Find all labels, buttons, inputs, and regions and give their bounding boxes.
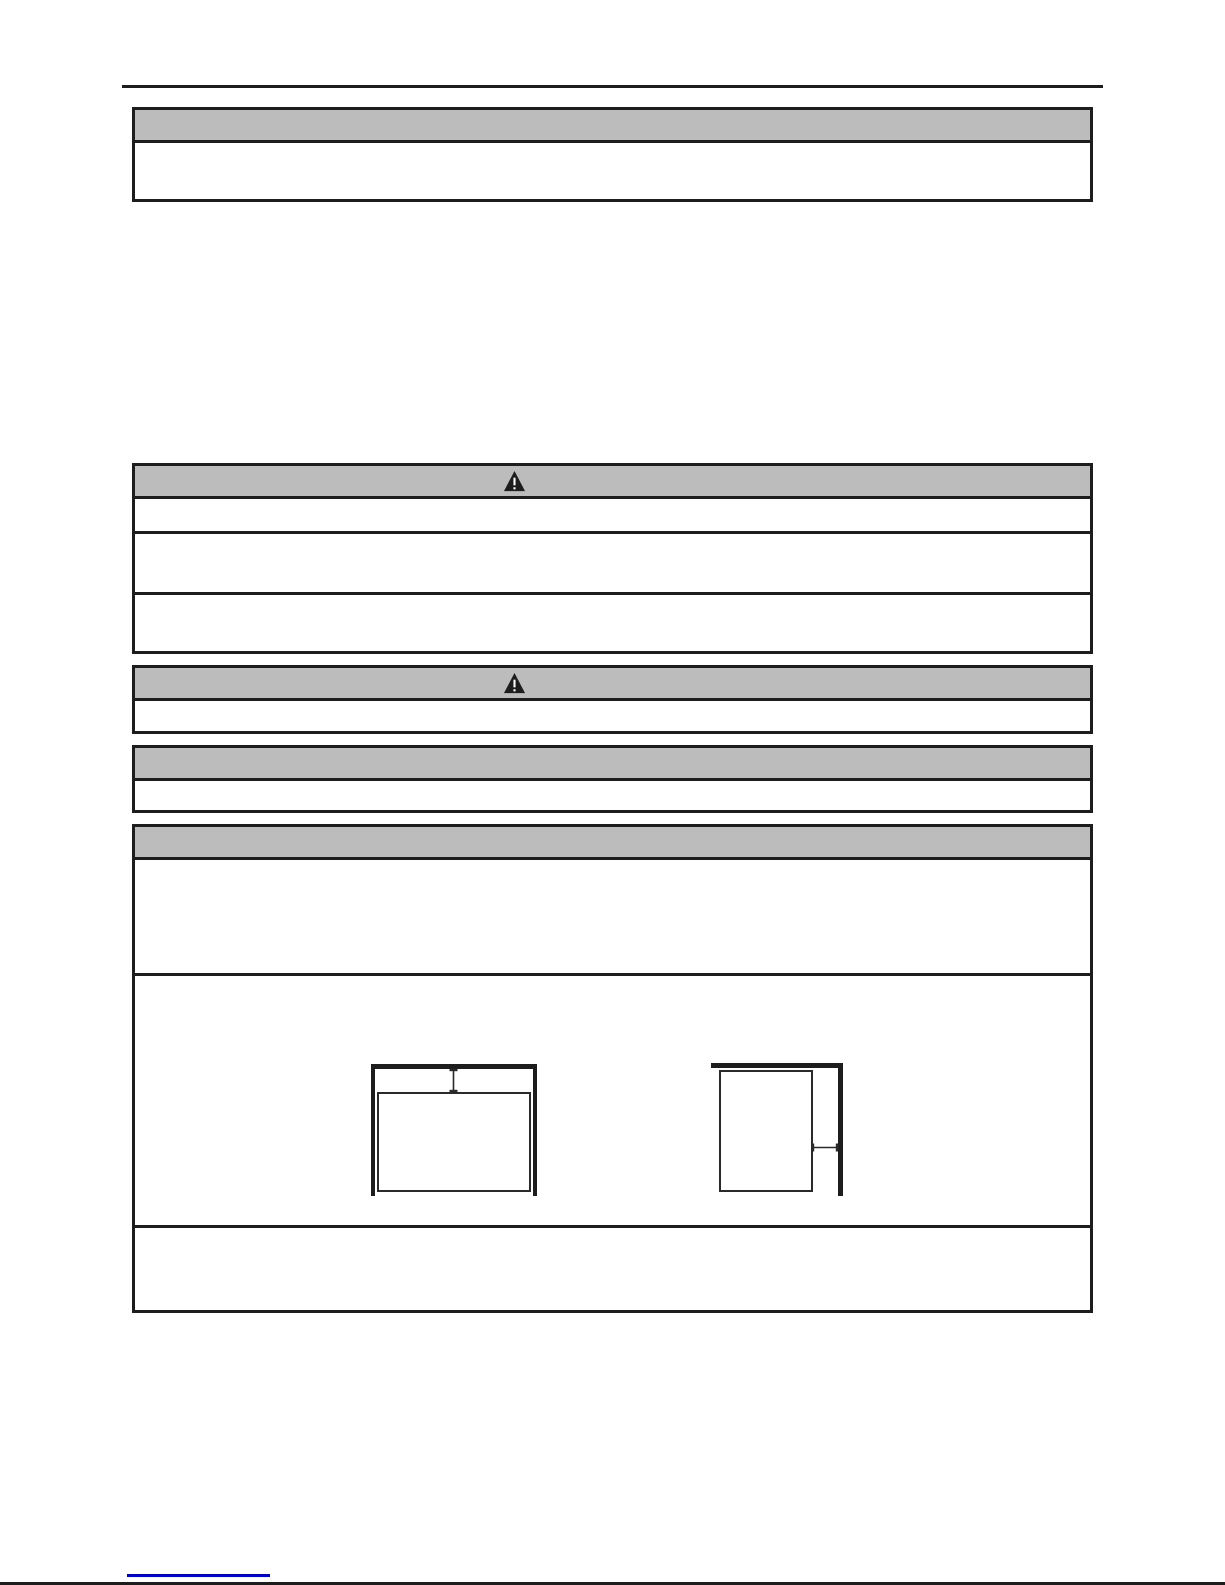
panel-box-5-row-1 bbox=[135, 860, 1090, 973]
panel-box-1-body bbox=[135, 143, 1090, 199]
panel-box-3-row-1 bbox=[135, 701, 1090, 731]
panel-box-1-header bbox=[135, 110, 1090, 143]
panel-box-5 bbox=[132, 824, 1093, 1313]
footer-link[interactable] bbox=[127, 1573, 270, 1579]
footer-link-underline bbox=[127, 1574, 270, 1577]
warning-icon bbox=[503, 672, 526, 695]
panel-box-2-header bbox=[135, 466, 1090, 499]
panel-box-3-header bbox=[135, 668, 1090, 701]
left-wall-line bbox=[371, 1064, 375, 1196]
warning-icon bbox=[503, 470, 526, 493]
panel-box-1 bbox=[132, 107, 1093, 202]
panel-box-2-row-2 bbox=[135, 531, 1090, 592]
panel-box-3 bbox=[132, 665, 1093, 734]
appliance-outline bbox=[377, 1092, 531, 1192]
panel-box-5-header bbox=[135, 827, 1090, 860]
top-rule bbox=[122, 85, 1103, 88]
right-wall-line bbox=[533, 1064, 537, 1196]
panel-box-4 bbox=[132, 745, 1093, 813]
appliance-outline bbox=[719, 1070, 813, 1192]
panel-box-5-row-2-diagrams bbox=[135, 973, 1090, 1225]
panel-box-2 bbox=[132, 463, 1093, 654]
panel-box-4-row-1 bbox=[135, 781, 1090, 810]
vertical-dimension-arrow bbox=[447, 1068, 460, 1093]
document-page bbox=[0, 0, 1225, 1585]
panel-box-2-row-3 bbox=[135, 592, 1090, 651]
right-wall-line bbox=[838, 1063, 843, 1196]
panel-box-5-row-3 bbox=[135, 1225, 1090, 1310]
top-clearance-diagram bbox=[371, 1064, 537, 1196]
panel-box-4-header bbox=[135, 748, 1090, 781]
ceiling-line bbox=[711, 1063, 843, 1068]
panel-box-2-row-1 bbox=[135, 499, 1090, 531]
side-clearance-diagram bbox=[711, 1063, 843, 1196]
horizontal-dimension-arrow bbox=[811, 1141, 839, 1154]
